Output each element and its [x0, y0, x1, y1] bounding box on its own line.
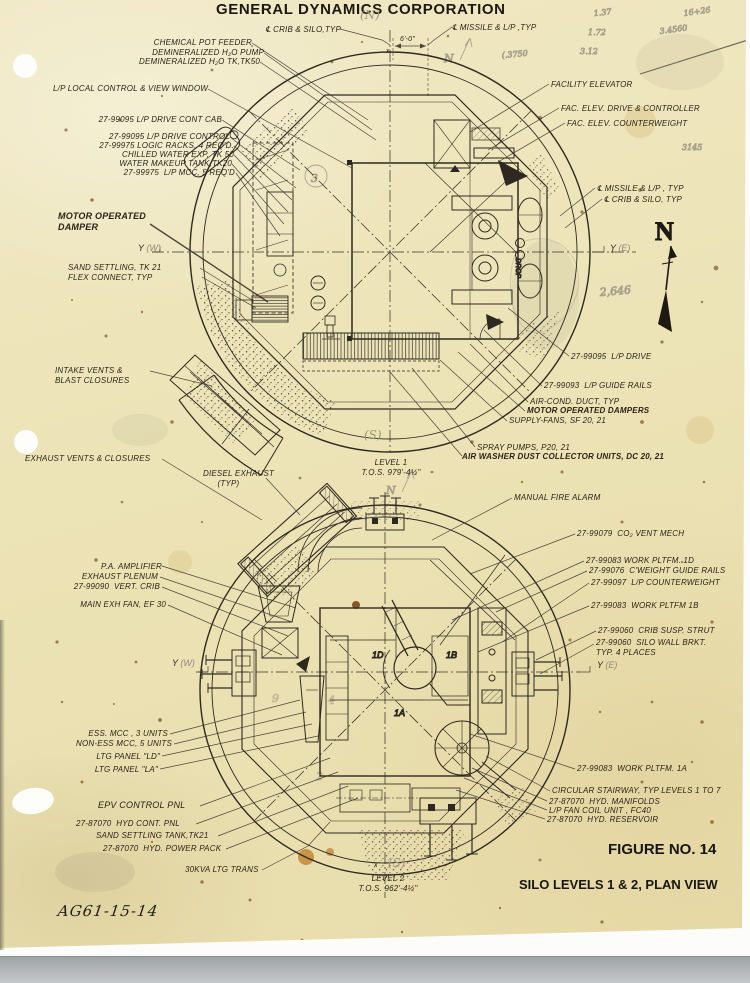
axis-east-paren: (E) — [605, 660, 617, 670]
label-cl-crib-r: ℄ CRIB & SILO, TYP — [604, 195, 682, 205]
label-demin-tank: DEMINERALIZED H₂O TK,TK50 — [78, 57, 260, 67]
axis-east-l2: Y (E) — [597, 660, 617, 670]
label-pa-amp: P.A. AMPLIFIER — [62, 562, 162, 572]
axis-south-l1: (S) — [364, 428, 382, 442]
axis-y: Y — [172, 658, 178, 668]
hole-punch — [13, 54, 37, 78]
label-ess-mcc: ESS. MCC , 3 UNITS — [64, 729, 168, 739]
label-hyd-reservoir: 27-87070 HYD. RESERVOIR — [547, 815, 658, 825]
figure-title: SILO LEVELS 1 & 2, PLAN VIEW — [519, 877, 718, 892]
label-facility-elevator: FACILITY ELEVATOR — [551, 80, 633, 90]
pencil-north-top: (N) — [360, 8, 380, 22]
label-air-washer: AIR WASHER DUST COLLECTOR UNITS, DC 20, … — [462, 452, 664, 462]
platform-1a-label: 1A — [394, 708, 405, 718]
label-lp-mcc: 27-99975 L/P MCC, 5 REQ'D — [43, 168, 235, 178]
axis-west-paren: (W) — [146, 243, 161, 253]
label-exhaust-vents: EXHAUST VENTS & CLOSURES — [25, 454, 150, 464]
axis-y: Y — [138, 243, 144, 253]
axis-x-mark-l2: x — [374, 862, 378, 869]
axis-east-l1: Y (E) — [610, 243, 630, 253]
pencil-note: (.3750 — [501, 49, 528, 60]
label-crib-strut: 27-99060 CRIB SUSP. STRUT — [598, 626, 715, 636]
label-drive-cont-cab: 27-99095 L/P DRIVE CONT CAB — [30, 115, 222, 125]
pencil-note: 3145 — [682, 143, 702, 152]
axis-west-paren: (W) — [180, 658, 195, 668]
label-noness-mcc: NON-ESS MCC, 5 UNITS — [58, 739, 172, 749]
axis-y: Y — [610, 243, 616, 253]
pencil-note: 16+26 — [683, 5, 711, 18]
label-fac-elev-drive: FAC. ELEV. DRIVE & CONTROLLER — [561, 104, 700, 114]
label-main-exh-fan: MAIN EXH FAN, EF 30 — [62, 600, 166, 610]
doc-number-handwritten: AG61-15-14 — [57, 902, 160, 920]
pencil-note: 4 — [327, 694, 335, 707]
platform-1d-label: 1D — [372, 650, 384, 660]
pencil-note: 9 — [272, 692, 279, 705]
label-local-control: L/P LOCAL CONTROL & VIEW WINDOW — [28, 84, 208, 94]
label-mo-dampers: MOTOR OPERATED DAMPERS — [527, 406, 649, 416]
label-ltg-la: LTG PANEL "LA" — [86, 765, 158, 775]
label-guide-rails: 27-99093 L/P GUIDE RAILS — [544, 381, 652, 391]
label-level2-caption: LEVEL 2 T.O.S. 962'-4½" — [338, 874, 438, 893]
label-pltfm-1a: 27-99083 WORK PLTFM. 1A — [577, 764, 687, 774]
label-cweight-rails: 27-99076 C'WEIGHT GUIDE RAILS — [589, 566, 725, 576]
label-lp-cwt: 27-99097 L/P COUNTERWEIGHT — [591, 578, 720, 588]
axis-x-mark-l1: x — [386, 48, 390, 55]
label-epv: EPV CONTROL PNL — [98, 800, 185, 811]
pencil-note: 1.72 — [588, 28, 606, 37]
axis-y: Y — [597, 660, 603, 670]
label-dim-6ft: 6'-0" — [400, 36, 415, 44]
north-arrow: N — [655, 217, 677, 332]
pencil-north-sketch: N — [385, 484, 396, 497]
scanned-drawing-sheet: 1.37 16+26 3.4560 1.72 3.12 (.3750 3145 … — [0, 0, 750, 956]
pencil-note: 1.37 — [593, 7, 613, 18]
label-pltfm-1d: 27-99083 WORK PLTFM. 1D — [586, 556, 694, 566]
label-cl-crib-top: ℄ CRIB & SILO,TYP — [241, 25, 341, 35]
label-sand-settling: SAND SETTLING, TK 21 FLEX CONNECT, TYP — [68, 263, 161, 282]
hole-punch — [14, 430, 38, 454]
axis-south-l2: (S) — [388, 856, 406, 870]
label-intake-vents: INTAKE VENTS & BLAST CLOSURES — [55, 366, 129, 385]
label-motor-damper: MOTOR OPERATED DAMPER — [58, 211, 146, 233]
label-lp-drive: 27-99095 L/P DRIVE — [571, 352, 651, 362]
label-ltg-trans: 30KVA LTG TRANS — [185, 865, 259, 875]
label-hyd-cont: 27-87070 HYD CONT. PNL — [76, 819, 180, 829]
axis-west-l1: Y (W) — [138, 243, 161, 253]
label-vert-crib: 27-99090 VERT. CRIB — [56, 582, 160, 592]
axis-east-paren: (E) — [618, 243, 630, 253]
figure-number: FIGURE NO. 14 — [608, 841, 716, 858]
label-exh-plenum: EXHAUST PLENUM — [58, 572, 158, 582]
label-sand-tank: SAND SETTLING TANK,TK21 — [96, 831, 208, 841]
label-pltfm-1b: 27-99083 WORK PLTFM 1B — [591, 601, 699, 611]
label-cl-missile-r: ℄ MISSILE & L/P , TYP — [597, 184, 684, 194]
scan-edge-shadow — [0, 620, 5, 950]
label-wall-brkt: 27-99060 SILO WALL BRKT. TYP. 4 PLACES — [596, 638, 706, 657]
label-cl-missile-top: ℄ MISSILE & L/P ,TYP — [452, 23, 536, 33]
label-stairway: CIRCULAR STAIRWAY, TYP LEVELS 1 TO 7 — [552, 786, 721, 796]
pencil-note: 3.12 — [580, 47, 598, 56]
label-diesel-exhaust: DIESEL EXHAUST (TYP) — [203, 469, 274, 488]
label-level1-caption: LEVEL 1 T.O.S. 979'-4½" — [346, 458, 436, 477]
label-chemical-pot-feeder: CHEMICAL POT FEEDER — [100, 38, 252, 48]
label-co2-vent: 27-99079 CO₂ VENT MECH — [577, 529, 684, 539]
pencil-note: 2,646 — [598, 283, 632, 299]
label-supply-fans: SUPPLY-FANS, SF 20, 21 — [509, 416, 606, 426]
drop-marking: DROP — [514, 258, 521, 279]
label-hyd-pack: 27-87070 HYD. POWER PACK — [103, 844, 221, 854]
hole-punch — [10, 785, 55, 817]
label-ltg-ld: LTG PANEL "LD" — [84, 752, 160, 762]
level2-plan: 1D 1B 1A — [196, 483, 580, 898]
north-letter: N — [655, 217, 674, 246]
axis-west-l2: Y (W) — [172, 658, 195, 668]
platform-1b-label: 1B — [446, 650, 457, 660]
label-fire-alarm: MANUAL FIRE ALARM — [514, 493, 601, 503]
pencil-north-sketch: N — [443, 52, 454, 65]
scanner-bed-strip — [0, 956, 750, 983]
pencil-note: 3.4560 — [659, 23, 688, 36]
label-fac-elev-cwt: FAC. ELEV. COUNTERWEIGHT — [567, 119, 687, 129]
